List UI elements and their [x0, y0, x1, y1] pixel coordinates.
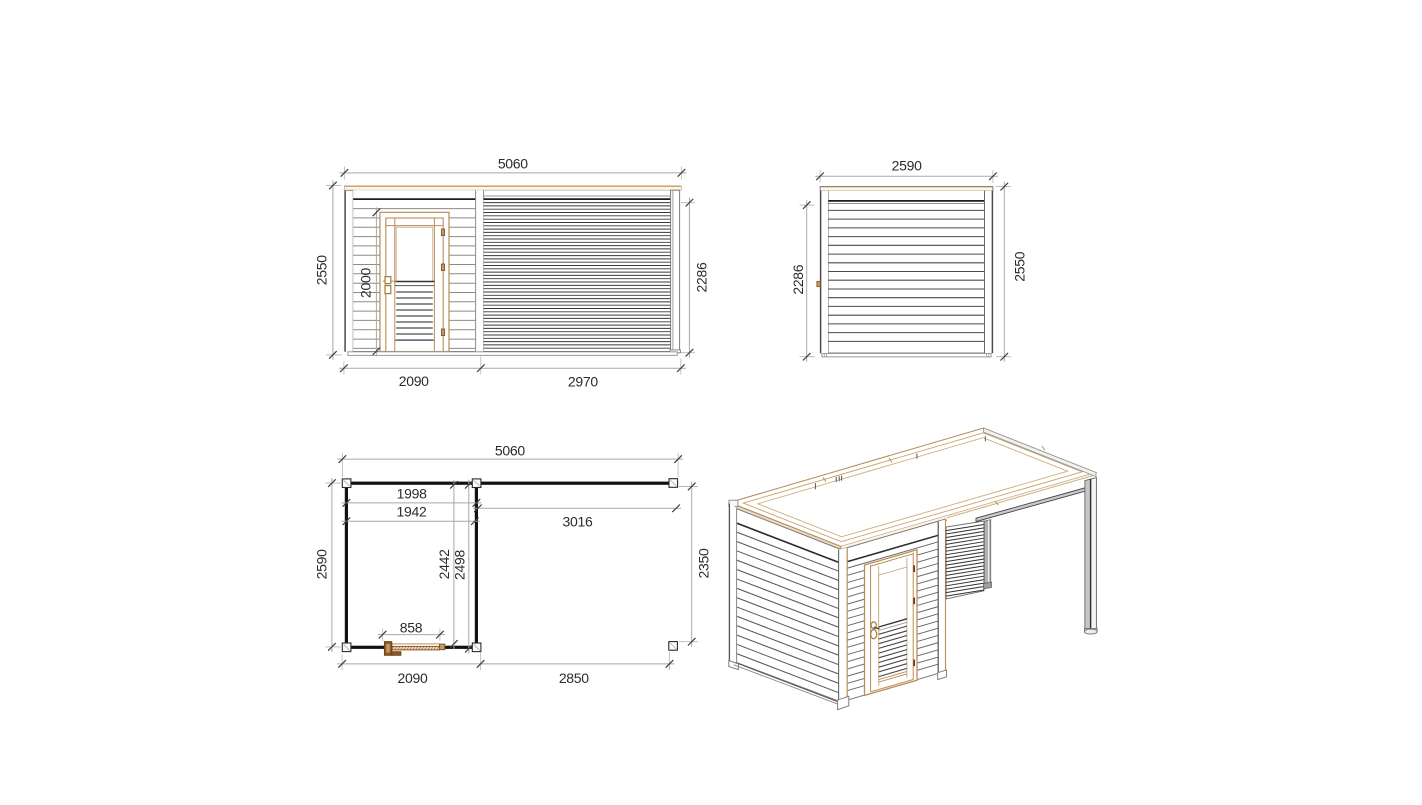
svg-text:2090: 2090: [399, 373, 429, 389]
svg-text:2590: 2590: [892, 158, 922, 174]
svg-text:2970: 2970: [568, 373, 598, 389]
svg-text:1942: 1942: [397, 504, 427, 520]
svg-text:3016: 3016: [563, 513, 593, 529]
svg-text:858: 858: [400, 620, 423, 636]
svg-text:2442: 2442: [436, 549, 452, 579]
svg-text:2850: 2850: [559, 670, 589, 686]
svg-text:2550: 2550: [313, 255, 329, 285]
svg-text:5060: 5060: [498, 155, 528, 171]
svg-text:1998: 1998: [397, 485, 427, 501]
svg-text:2286: 2286: [693, 262, 709, 292]
svg-text:5060: 5060: [495, 442, 525, 458]
svg-text:2590: 2590: [314, 549, 330, 579]
svg-text:2090: 2090: [398, 670, 428, 686]
svg-text:2286: 2286: [790, 264, 806, 294]
svg-text:2498: 2498: [452, 550, 468, 580]
svg-text:2550: 2550: [1012, 251, 1028, 281]
svg-text:2000: 2000: [358, 268, 374, 298]
svg-text:2350: 2350: [696, 548, 712, 578]
